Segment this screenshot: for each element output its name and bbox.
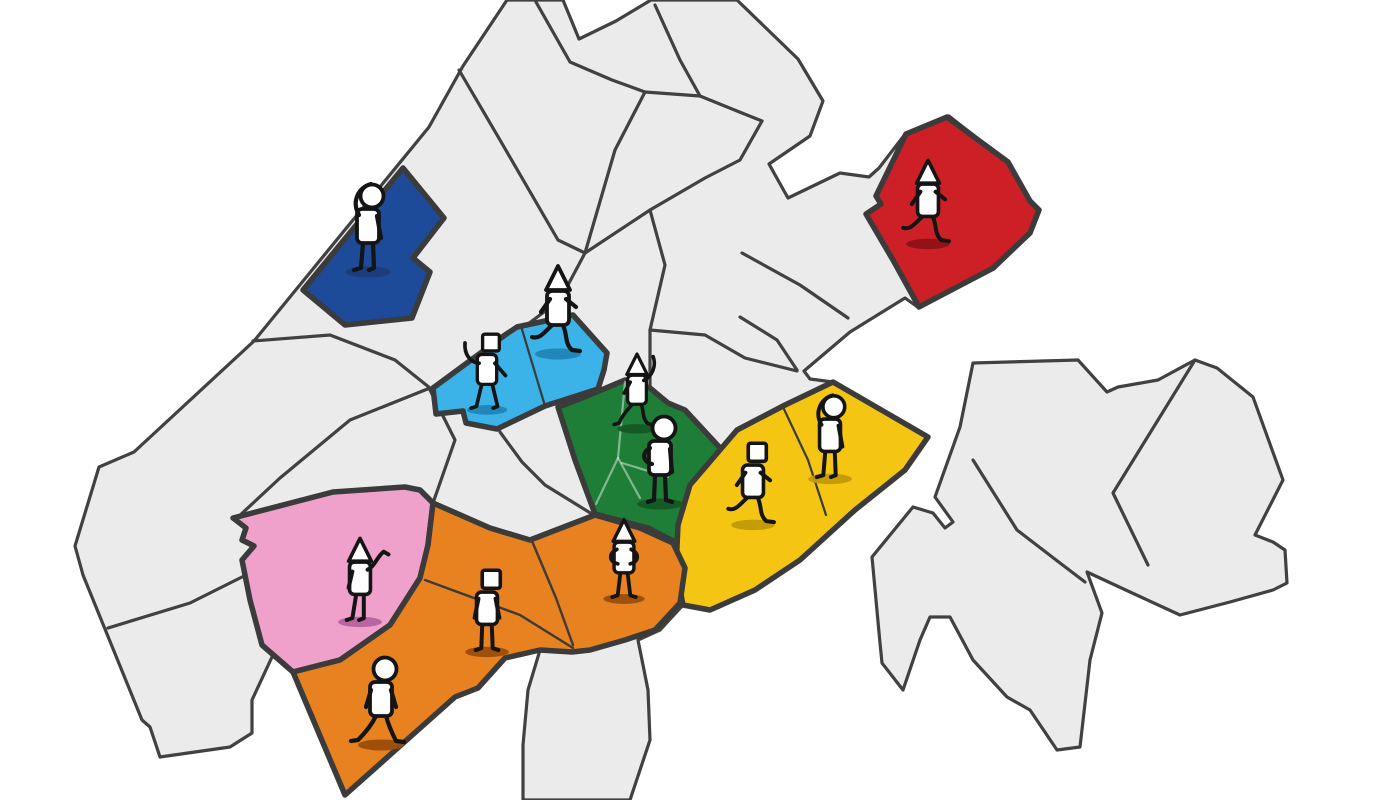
figure-limb	[670, 449, 672, 472]
figure-body	[649, 441, 671, 475]
figure-body	[477, 354, 496, 384]
square-head-icon	[748, 443, 766, 461]
square-head-icon	[483, 334, 500, 351]
figure-shadow	[808, 474, 852, 484]
figure-shadow	[465, 647, 509, 657]
figure-body	[547, 291, 569, 325]
figure-body	[918, 184, 939, 216]
round-head-icon	[374, 658, 397, 681]
figure-body	[370, 682, 392, 716]
figure-body	[614, 542, 634, 573]
district-map-canvas	[0, 0, 1381, 800]
square-head-icon	[482, 570, 500, 588]
figure-shadow	[345, 267, 391, 278]
southeast-landmass	[872, 360, 1287, 750]
figure-body	[743, 465, 764, 497]
figure-shadow	[637, 499, 683, 510]
round-head-icon	[653, 417, 676, 440]
figure-body	[477, 592, 498, 624]
figure-shadow	[603, 594, 644, 604]
district-map-svg	[0, 0, 1381, 800]
